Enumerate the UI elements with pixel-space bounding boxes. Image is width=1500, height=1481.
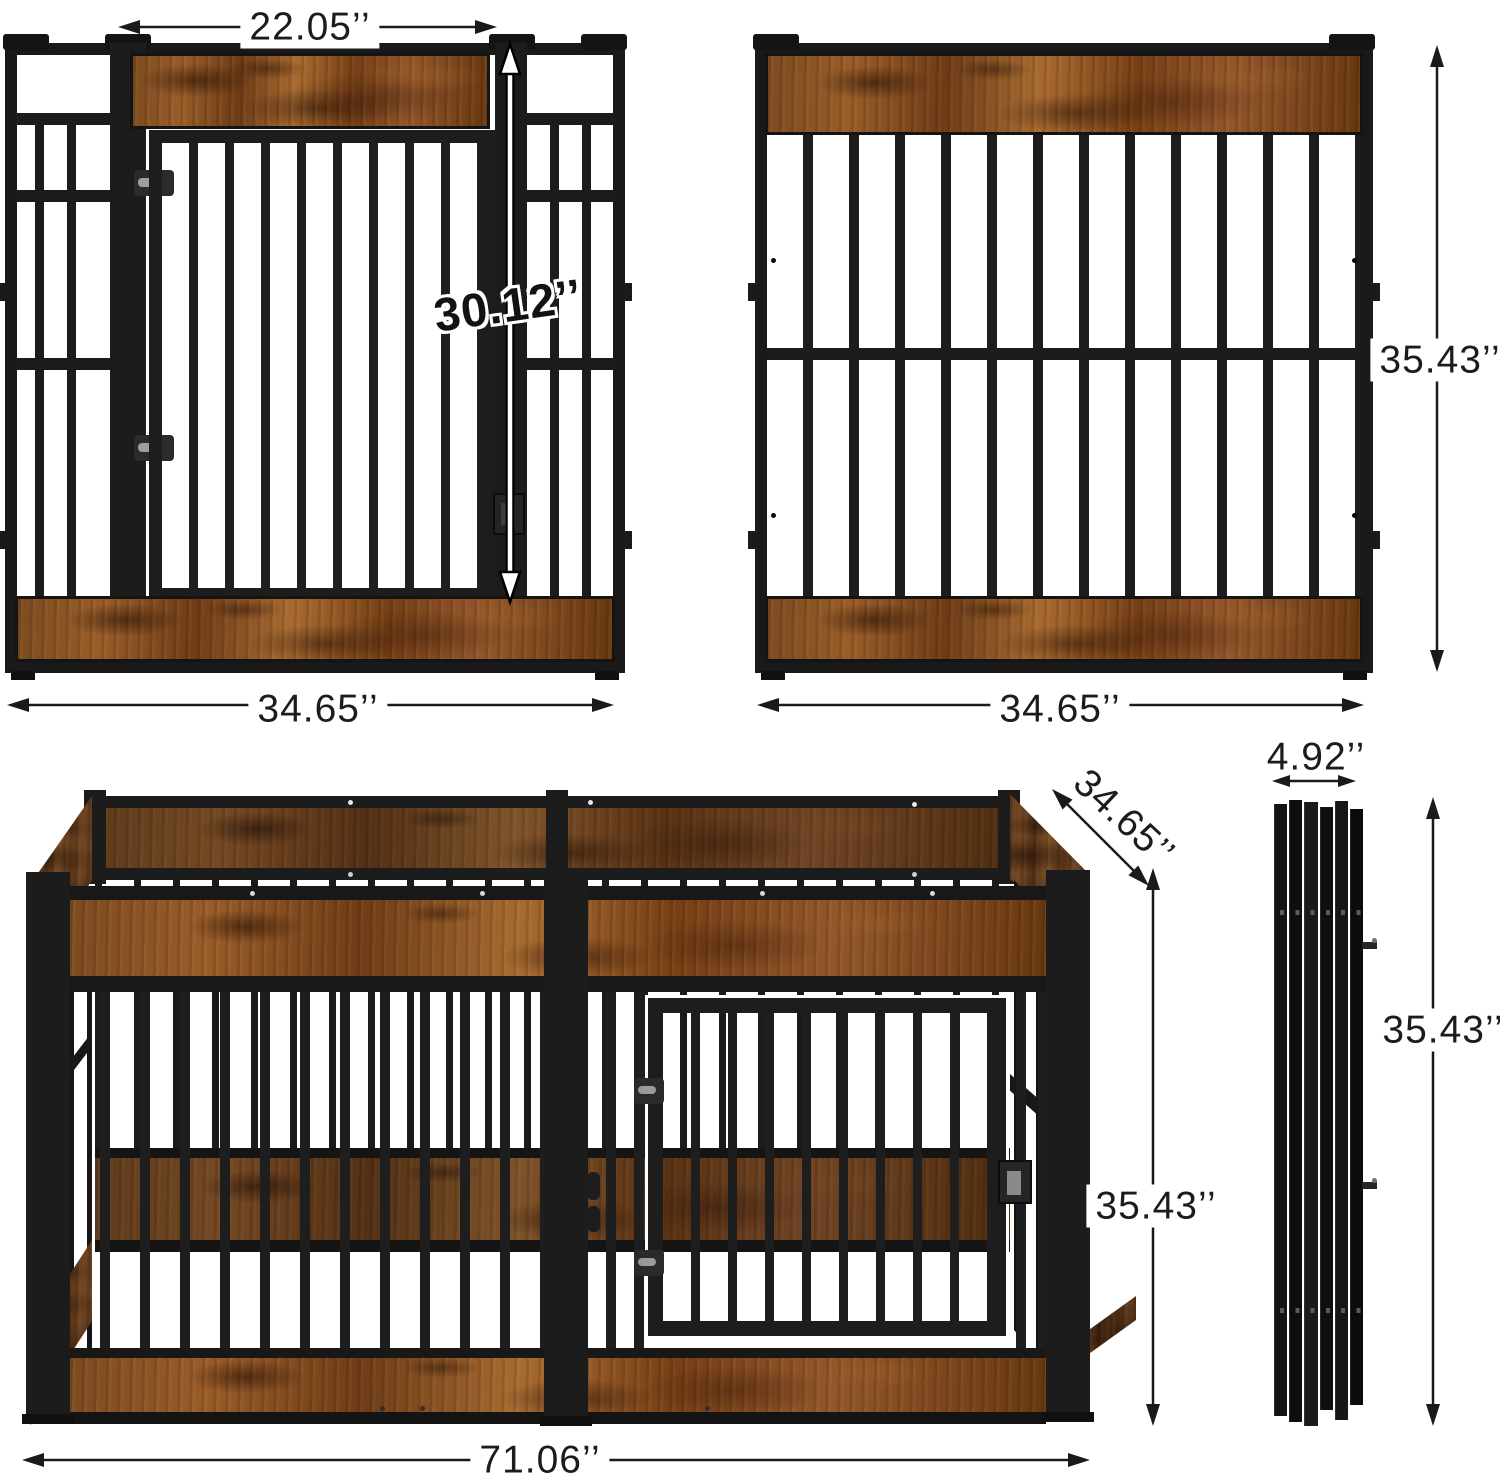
gate-width-label: 22.05’’	[240, 6, 379, 49]
folded-thickness-label: 4.92’’	[1267, 738, 1366, 777]
pen-height-label: 35.43’’	[1086, 1185, 1225, 1228]
pen-length-label: 71.06’’	[470, 1439, 609, 1481]
dim-arrow-folded-height	[1426, 797, 1440, 1426]
dim-arrow-pen-height	[1146, 868, 1160, 1426]
side-panel-height-label: 35.43’’	[1370, 339, 1500, 382]
dimension-diagram: 22.05’’ 30.12’’ 34.65’’ 34.65’’ 35.43’’ …	[0, 0, 1500, 1481]
side-panel-width-label: 34.65’’	[990, 688, 1129, 731]
front-panel-width-label: 34.65’’	[248, 688, 387, 731]
folded-height-label: 35.43’’	[1373, 1009, 1500, 1052]
